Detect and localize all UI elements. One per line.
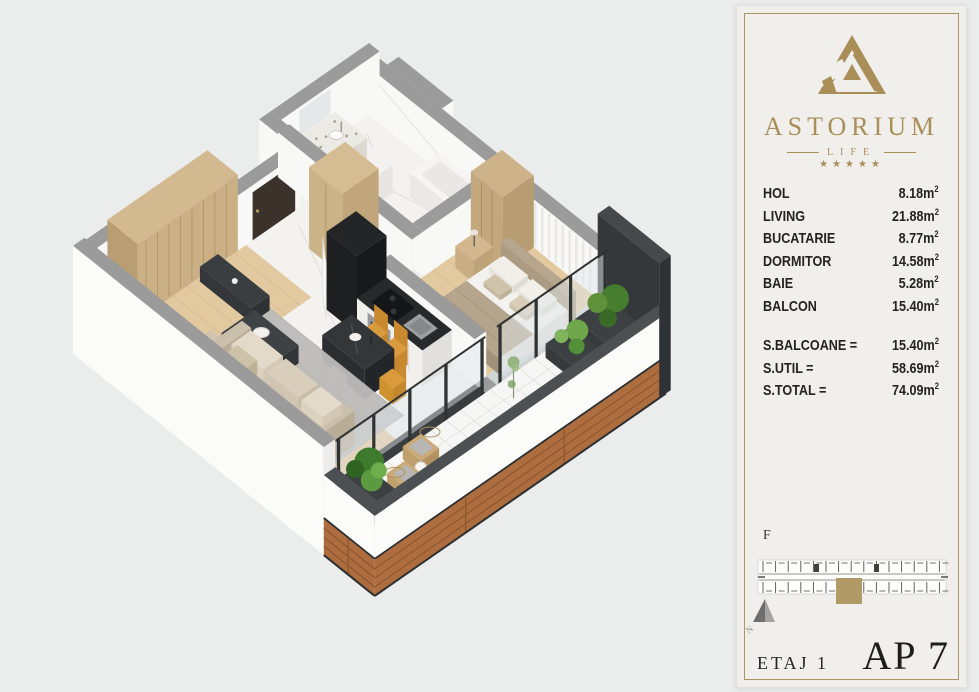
brand-logo-triangle-icon xyxy=(816,32,888,102)
room-label: BALCON xyxy=(763,298,817,315)
room-row-hol: HOL 8.18m2 xyxy=(763,184,939,207)
room-area: 8.18m2 xyxy=(899,184,939,202)
room-row-bucatarie: BUCATARIE 8.77m2 xyxy=(763,229,939,252)
room-area: 8.77m2 xyxy=(899,229,939,247)
scene: ASTORIUM LIFE ★★★★★ HOL 8.18m2 LIVING 21… xyxy=(0,0,979,692)
room-label: DORMITOR xyxy=(763,253,831,270)
room-area: 14.58m2 xyxy=(892,252,939,270)
info-panel: ASTORIUM LIFE ★★★★★ HOL 8.18m2 LIVING 21… xyxy=(736,5,967,688)
svg-text:N: N xyxy=(744,623,756,635)
total-area: 15.40m2 xyxy=(892,336,939,354)
brand-subtitle-row: LIFE xyxy=(737,147,966,158)
total-row-util: S.UTIL = 58.69m2 xyxy=(763,359,939,382)
building-locator-map xyxy=(756,552,950,614)
total-row-total: S.TOTAL = 74.09m2 xyxy=(763,381,939,404)
brand-name: ASTORIUM xyxy=(737,112,966,142)
total-label: S.TOTAL = xyxy=(763,382,826,399)
room-row-balcon: BALCON 15.40m2 xyxy=(763,297,939,320)
totals-list: S.BALCOANE = 15.40m2 S.UTIL = 58.69m2 S.… xyxy=(763,336,939,404)
room-row-dormitor: DORMITOR 14.58m2 xyxy=(763,252,939,275)
room-label: HOL xyxy=(763,185,790,202)
total-label: S.UTIL = xyxy=(763,360,814,377)
brand-stars: ★★★★★ xyxy=(737,159,966,170)
room-label: BUCATARIE xyxy=(763,230,835,247)
total-area: 58.69m2 xyxy=(892,359,939,377)
locator-floor-letter: F xyxy=(763,528,772,544)
dark-corner xyxy=(659,255,671,398)
rule-left-icon xyxy=(787,152,819,153)
room-label: BAIE xyxy=(763,275,793,292)
room-areas-list: HOL 8.18m2 LIVING 21.88m2 BUCATARIE 8.77… xyxy=(763,184,939,320)
apartment-label: AP 7 xyxy=(862,632,950,679)
total-label: S.BALCOANE = xyxy=(763,337,857,354)
room-row-living: LIVING 21.88m2 xyxy=(763,207,939,230)
rule-right-icon xyxy=(884,152,916,153)
total-row-balcoane: S.BALCOANE = 15.40m2 xyxy=(763,336,939,359)
footer: ETAJ 1 AP 7 xyxy=(757,632,950,679)
room-row-baie: BAIE 5.28m2 xyxy=(763,274,939,297)
room-label: LIVING xyxy=(763,208,805,225)
total-area: 74.09m2 xyxy=(892,381,939,399)
highlighted-unit xyxy=(836,578,862,604)
room-area: 21.88m2 xyxy=(892,207,939,225)
room-area: 15.40m2 xyxy=(892,297,939,315)
brand-subtitle: LIFE xyxy=(827,147,876,158)
floor-label: ETAJ 1 xyxy=(757,653,829,674)
room-area: 5.28m2 xyxy=(899,274,939,292)
